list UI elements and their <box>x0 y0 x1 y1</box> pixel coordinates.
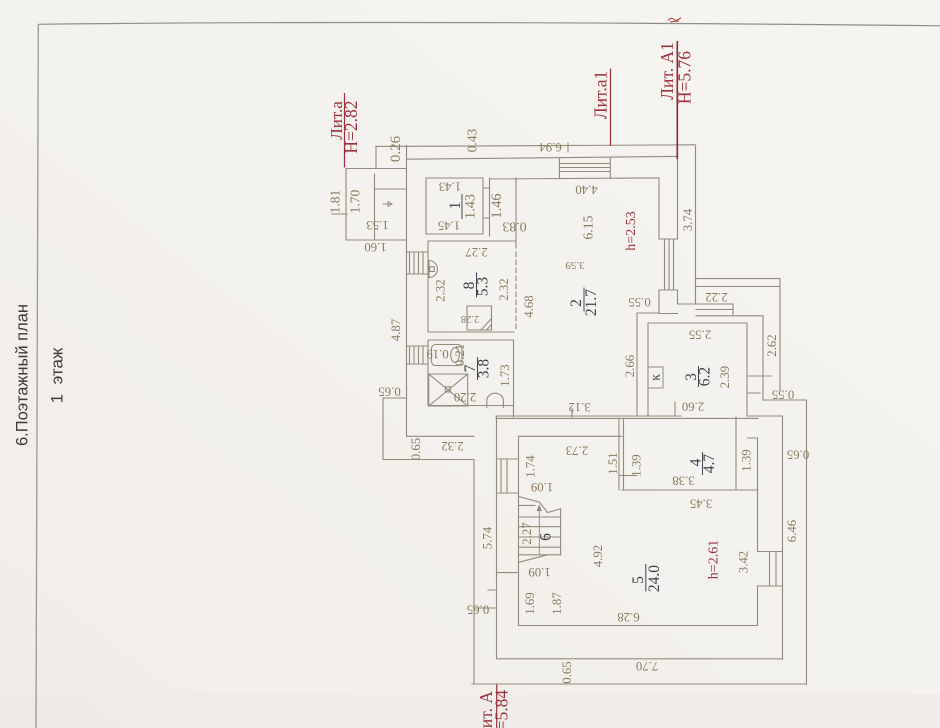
svg-text:0.65: 0.65 <box>467 603 489 617</box>
svg-text:1.74: 1.74 <box>524 455 538 478</box>
svg-text:4.87: 4.87 <box>389 318 403 341</box>
svg-text:3.59: 3.59 <box>565 259 585 271</box>
svg-text:2.39: 2.39 <box>718 366 732 388</box>
svg-text:1.09: 1.09 <box>528 565 550 579</box>
svg-text:0.65: 0.65 <box>378 385 400 399</box>
svg-text:2.55: 2.55 <box>689 328 711 342</box>
svg-text:5: 5 <box>630 576 647 584</box>
svg-text:2.66: 2.66 <box>623 354 637 377</box>
svg-text:2.32: 2.32 <box>434 279 448 301</box>
svg-text:2.32: 2.32 <box>497 278 511 300</box>
svg-text:2.62: 2.62 <box>765 334 779 356</box>
svg-text:2.27: 2.27 <box>520 522 534 545</box>
svg-text:1.81: 1.81 <box>328 190 343 214</box>
svg-text:0.21: 0.21 <box>453 344 467 366</box>
svg-text:1.53: 1.53 <box>366 218 388 232</box>
svg-text:1.09: 1.09 <box>531 480 553 494</box>
svg-text:1.43: 1.43 <box>463 194 479 219</box>
svg-text:6.46: 6.46 <box>785 519 799 542</box>
svg-text:1.87: 1.87 <box>550 592 564 615</box>
svg-text:1.70: 1.70 <box>348 189 363 213</box>
svg-text:1.39: 1.39 <box>630 454 644 476</box>
svg-text:0.65: 0.65 <box>409 438 423 460</box>
svg-text:2.32: 2.32 <box>441 439 463 453</box>
svg-text:6.28: 6.28 <box>617 610 639 624</box>
svg-text:24.0: 24.0 <box>646 565 663 592</box>
svg-text:2.20: 2.20 <box>454 390 476 404</box>
svg-text:1 этаж: 1 этаж <box>48 347 67 403</box>
svg-text:6: 6 <box>538 533 555 541</box>
svg-text:6.2: 6.2 <box>697 367 714 386</box>
svg-text:0.83: 0.83 <box>502 220 526 235</box>
svg-text:1.45: 1.45 <box>438 219 460 233</box>
svg-text:3.12: 3.12 <box>568 400 590 414</box>
svg-text:0.19: 0.19 <box>426 347 448 361</box>
svg-text:1.43: 1.43 <box>439 180 461 194</box>
svg-text:21.7: 21.7 <box>583 289 600 316</box>
svg-text:2.60: 2.60 <box>682 400 704 414</box>
svg-text:2.73: 2.73 <box>566 444 588 458</box>
svg-text:7.70: 7.70 <box>636 659 658 673</box>
svg-text:1.39: 1.39 <box>740 449 754 471</box>
svg-text:3.38: 3.38 <box>672 474 694 488</box>
svg-text:Н=5.84: Н=5.84 <box>492 690 512 728</box>
svg-text:0.43: 0.43 <box>465 128 480 152</box>
svg-text:4.40: 4.40 <box>575 183 597 197</box>
svg-text:h=2.61: h=2.61 <box>707 540 722 579</box>
svg-text:к: к <box>648 374 663 381</box>
svg-text:3.74: 3.74 <box>681 208 695 231</box>
svg-text:0.65: 0.65 <box>560 661 574 683</box>
svg-text:2.27: 2.27 <box>465 245 488 259</box>
svg-text:3.42: 3.42 <box>737 551 751 573</box>
svg-text:3.8: 3.8 <box>476 359 493 379</box>
svg-text:2.28: 2.28 <box>461 313 479 324</box>
svg-text:0.55: 0.55 <box>628 295 650 309</box>
svg-text:1.51: 1.51 <box>606 452 620 474</box>
svg-text:1: 1 <box>447 202 464 210</box>
svg-text:5.3: 5.3 <box>475 277 492 297</box>
svg-text:1.73: 1.73 <box>498 364 512 386</box>
svg-text:4.68: 4.68 <box>522 295 536 317</box>
svg-text:6.94: 6.94 <box>539 140 562 154</box>
svg-text:5.74: 5.74 <box>481 526 495 549</box>
svg-text:6.15: 6.15 <box>581 215 596 239</box>
svg-text:4.7: 4.7 <box>701 454 718 474</box>
svg-text:1.46: 1.46 <box>489 193 505 218</box>
svg-text:h=2.53: h=2.53 <box>624 211 639 250</box>
svg-text:0.55: 0.55 <box>772 388 794 402</box>
svg-text:6.Поэтажный план: 6.Поэтажный план <box>14 304 32 446</box>
svg-text:1.69: 1.69 <box>523 592 537 614</box>
svg-text:3.45: 3.45 <box>690 497 712 511</box>
svg-text:0.26: 0.26 <box>388 135 404 162</box>
svg-text:Лит.а1: Лит.а1 <box>591 71 611 119</box>
svg-text:2.22: 2.22 <box>705 290 727 304</box>
svg-text:1.60: 1.60 <box>364 240 386 254</box>
svg-text:4.92: 4.92 <box>591 545 605 567</box>
svg-text:0.65: 0.65 <box>787 448 809 462</box>
